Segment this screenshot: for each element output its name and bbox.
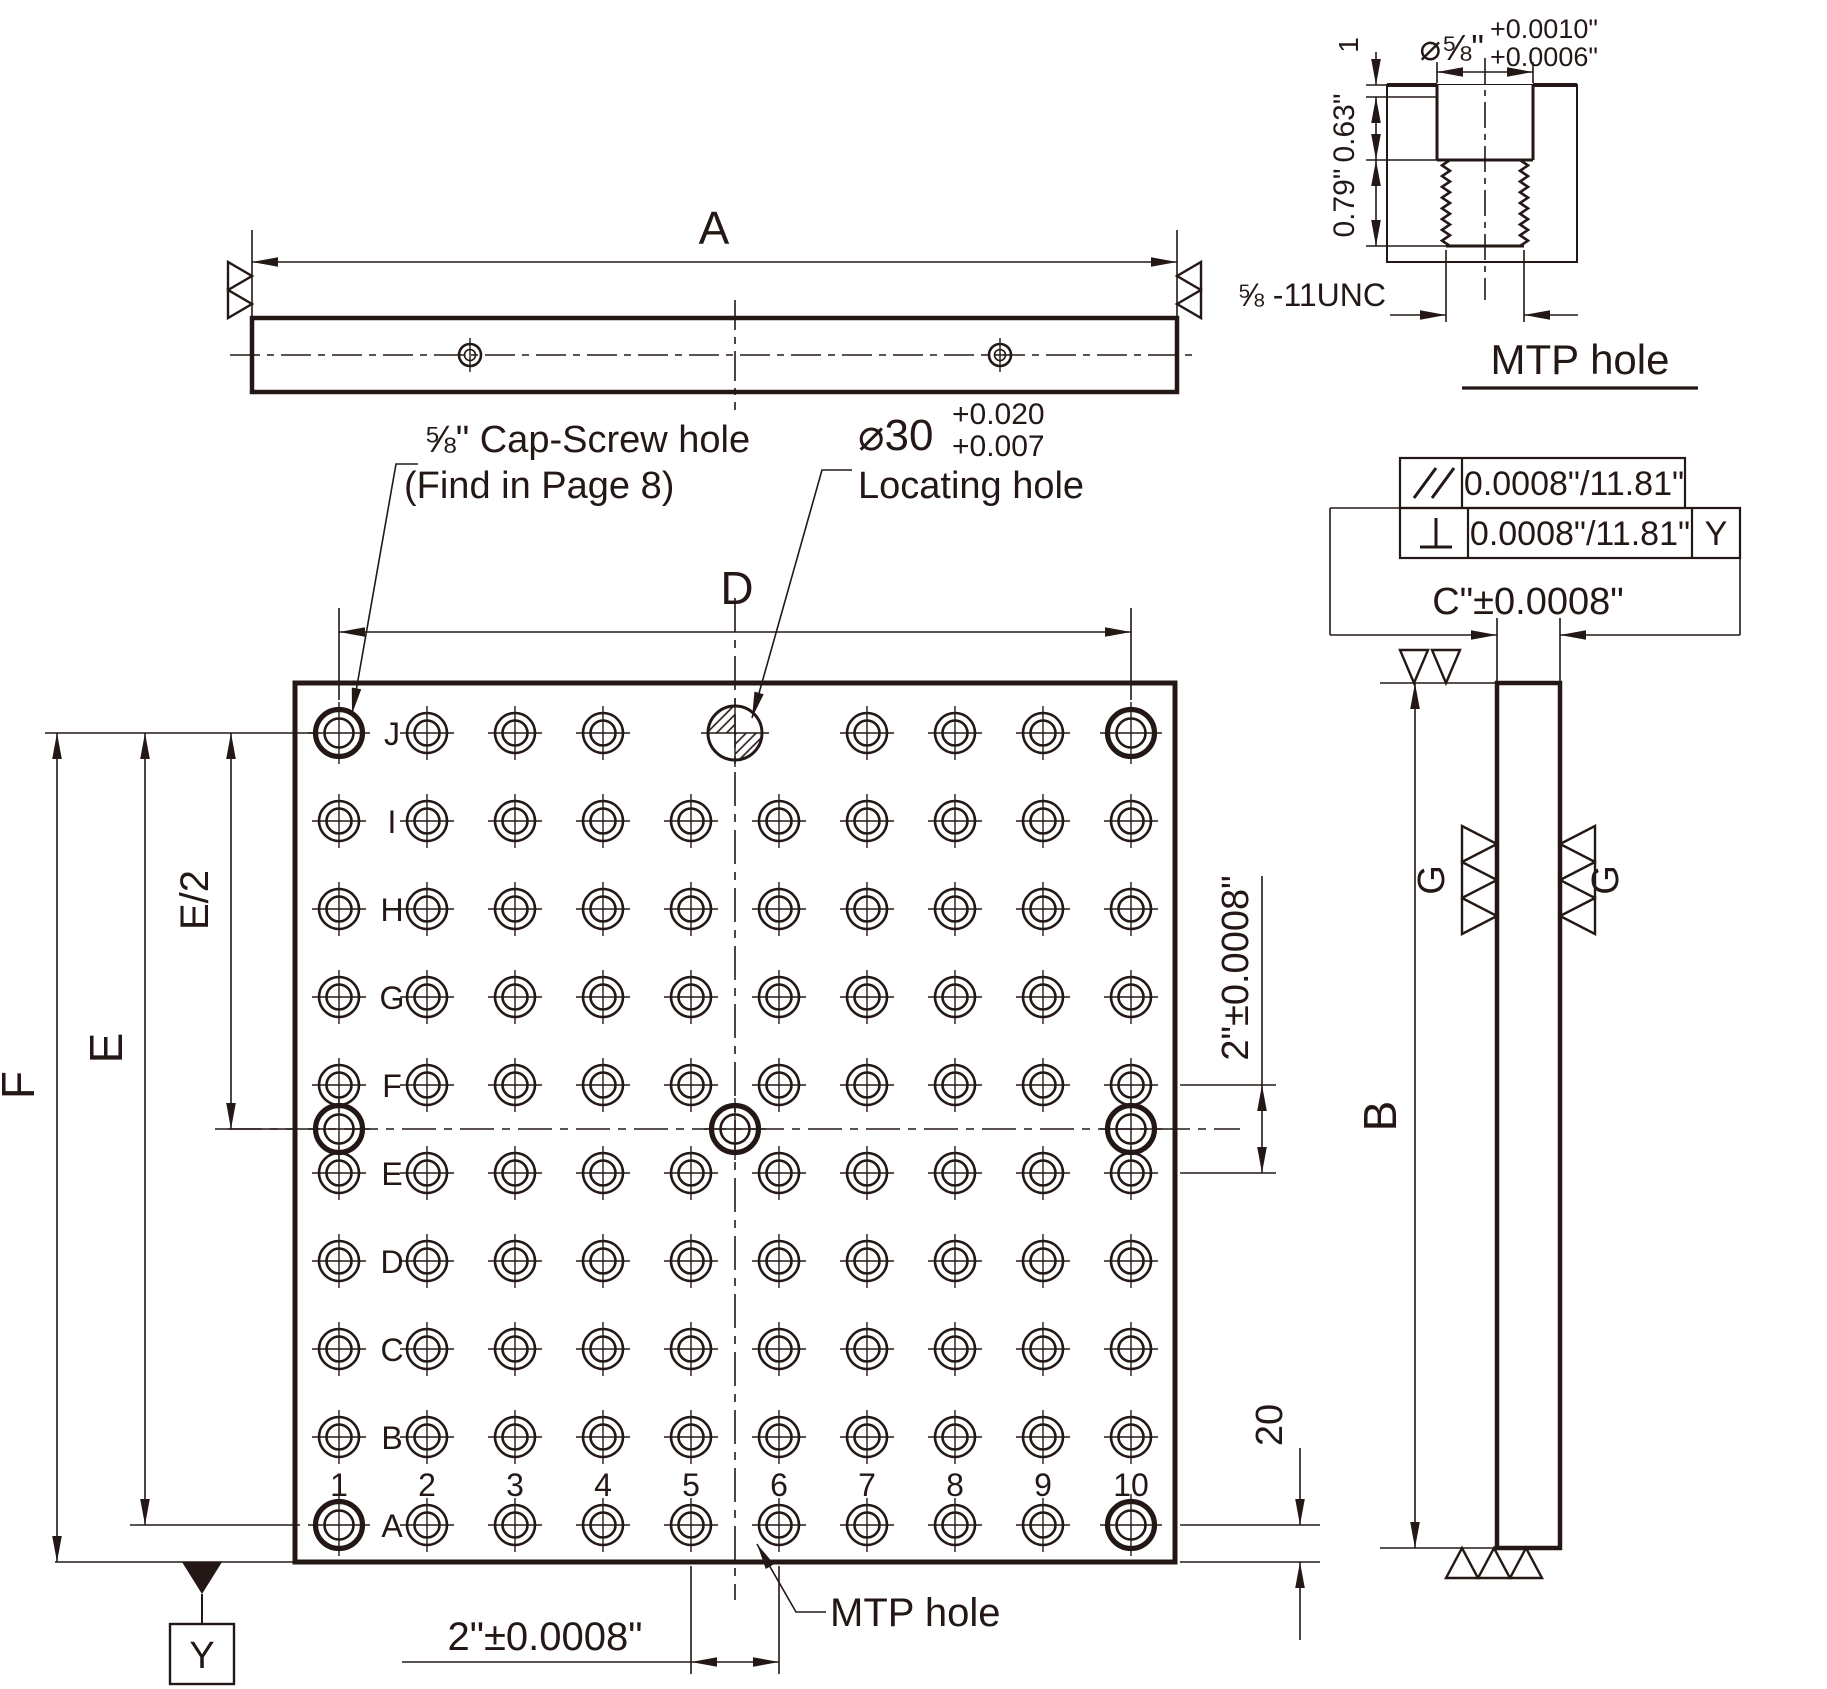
row-label-B: B bbox=[381, 1420, 402, 1456]
mtp-hole bbox=[664, 794, 718, 848]
mtp-hole bbox=[1016, 1498, 1070, 1552]
mtp-hole bbox=[488, 1146, 542, 1200]
surface-finish-marks-side-bottom bbox=[1446, 1548, 1542, 1578]
mtp-hole bbox=[840, 1058, 894, 1112]
detail-dia-label: ⌀⅝" bbox=[1420, 27, 1484, 68]
mtp-hole bbox=[664, 1234, 718, 1288]
mtp-hole bbox=[1104, 1322, 1158, 1376]
mtp-hole bbox=[488, 882, 542, 936]
cap-screw-callout-line2: (Find in Page 8) bbox=[404, 465, 674, 507]
mtp-hole bbox=[1016, 1410, 1070, 1464]
frame-datum-ref: Y bbox=[1705, 515, 1728, 553]
parallelism-value: 0.0008"/11.81" bbox=[1464, 465, 1684, 503]
mtp-hole bbox=[840, 1146, 894, 1200]
surface-finish-marks-side-top bbox=[1400, 650, 1460, 683]
mtp-hole bbox=[664, 1058, 718, 1112]
col-label-6: 6 bbox=[770, 1467, 788, 1503]
mtp-hole bbox=[488, 1498, 542, 1552]
row-label-F: F bbox=[382, 1068, 402, 1104]
mtp-hole bbox=[752, 1498, 806, 1552]
mtp-hole bbox=[1104, 1234, 1158, 1288]
mtp-hole bbox=[312, 970, 366, 1024]
row-label-D: D bbox=[380, 1244, 403, 1280]
mtp-hole bbox=[400, 1058, 454, 1112]
mtp-hole bbox=[928, 1498, 982, 1552]
mtp-hole bbox=[488, 1322, 542, 1376]
dim-label-2in-vertical: 2"±0.0008" bbox=[1215, 875, 1257, 1060]
cap-screw-hole bbox=[1100, 1494, 1162, 1556]
dim-label-D: D bbox=[720, 562, 753, 614]
mtp-hole bbox=[752, 1410, 806, 1464]
detail-thread-label: ⅝ -11UNC bbox=[1237, 277, 1386, 313]
mtp-hole bbox=[488, 1058, 542, 1112]
detail-dim-079: 0.79" bbox=[1328, 168, 1361, 237]
surface-label-G-left: G bbox=[1411, 865, 1453, 895]
surface-finish-marks-G bbox=[1462, 826, 1595, 934]
mtp-hole bbox=[752, 1058, 806, 1112]
mtp-hole bbox=[576, 882, 630, 936]
mtp-hole bbox=[664, 970, 718, 1024]
mtp-hole bbox=[400, 1410, 454, 1464]
mtp-hole bbox=[1104, 882, 1158, 936]
mtp-hole bbox=[928, 1146, 982, 1200]
locating-dia-label: ⌀30 bbox=[858, 411, 933, 460]
mtp-hole bbox=[928, 1322, 982, 1376]
mtp-hole bbox=[664, 1410, 718, 1464]
mtp-hole bbox=[752, 1322, 806, 1376]
mtp-hole bbox=[664, 1498, 718, 1552]
mtp-hole bbox=[840, 706, 894, 760]
mtp-hole bbox=[1016, 1058, 1070, 1112]
col-label-8: 8 bbox=[946, 1467, 964, 1503]
side-thickness-view: C"±0.0008" B G G bbox=[1330, 581, 1740, 1578]
mtp-hole bbox=[752, 1234, 806, 1288]
dim-label-2in-horizontal: 2"±0.0008" bbox=[448, 1615, 643, 1659]
detail-title: MTP hole bbox=[1491, 336, 1670, 383]
mtp-hole bbox=[312, 1410, 366, 1464]
mtp-hole bbox=[400, 970, 454, 1024]
col-label-3: 3 bbox=[506, 1467, 524, 1503]
mtp-hole bbox=[840, 1234, 894, 1288]
parallelism-icon bbox=[1414, 468, 1436, 498]
cap-screw-hole bbox=[1100, 702, 1162, 764]
datum-triangle bbox=[182, 1562, 222, 1594]
dim-label-20: 20 bbox=[1249, 1404, 1291, 1446]
mtp-hole bbox=[840, 1322, 894, 1376]
mtp-hole bbox=[928, 794, 982, 848]
dim-label-C: C"±0.0008" bbox=[1432, 581, 1624, 623]
mtp-hole bbox=[400, 706, 454, 760]
row-label-A: A bbox=[381, 1508, 403, 1544]
col-label-2: 2 bbox=[418, 1467, 436, 1503]
mtp-hole bbox=[1104, 794, 1158, 848]
mtp-hole bbox=[1016, 882, 1070, 936]
locating-name-label: Locating hole bbox=[858, 465, 1084, 507]
mtp-hole-detail-view: ⌀⅝" +0.0010" +0.0006" 1 0.63" 0.79" ⅝ -1… bbox=[1237, 14, 1698, 388]
col-label-5: 5 bbox=[682, 1467, 700, 1503]
mtp-hole bbox=[488, 970, 542, 1024]
mtp-hole bbox=[488, 1410, 542, 1464]
row-label-G: G bbox=[380, 980, 405, 1016]
mtp-hole bbox=[840, 1498, 894, 1552]
mtp-hole bbox=[400, 882, 454, 936]
locating-tol-lower: +0.007 bbox=[952, 430, 1045, 463]
mtp-hole bbox=[400, 1498, 454, 1552]
mtp-hole bbox=[840, 882, 894, 936]
mtp-hole bbox=[752, 1146, 806, 1200]
mtp-hole bbox=[928, 706, 982, 760]
side-view-plate-body bbox=[1497, 683, 1560, 1548]
dim-label-B: B bbox=[1354, 1101, 1406, 1132]
mtp-hole bbox=[1016, 1322, 1070, 1376]
row-label-C: C bbox=[380, 1332, 403, 1368]
mtp-hole bbox=[1104, 970, 1158, 1024]
col-label-1: 1 bbox=[330, 1467, 348, 1503]
row-label-I: I bbox=[388, 804, 397, 840]
col-label-4: 4 bbox=[594, 1467, 612, 1503]
mtp-hole bbox=[576, 1058, 630, 1112]
perpendicularity-value: 0.0008"/11.81" bbox=[1470, 515, 1690, 553]
mtp-hole bbox=[576, 1322, 630, 1376]
surface-finish-marks-top-view bbox=[228, 262, 1201, 318]
mtp-hole bbox=[1016, 706, 1070, 760]
mtp-hole bbox=[488, 706, 542, 760]
cap-screw-hole bbox=[308, 1494, 370, 1556]
mtp-hole bbox=[576, 1498, 630, 1552]
mtp-hole bbox=[312, 794, 366, 848]
mtp-hole bbox=[400, 1234, 454, 1288]
mtp-hole bbox=[1104, 1410, 1158, 1464]
detail-dim-1: 1 bbox=[1333, 37, 1364, 53]
mtp-hole-leader bbox=[757, 1544, 826, 1612]
mtp-hole bbox=[312, 1234, 366, 1288]
mtp-hole bbox=[928, 1410, 982, 1464]
mtp-hole bbox=[928, 1234, 982, 1288]
row-label-J: J bbox=[384, 716, 400, 752]
mtp-hole bbox=[576, 706, 630, 760]
mtp-hole bbox=[312, 882, 366, 936]
main-plan-view: JIHGFEDCBA12345678910 D F E E/2 2"±0.000… bbox=[0, 398, 1320, 1684]
mtp-hole bbox=[576, 1234, 630, 1288]
detail-dim-063: 0.63" bbox=[1328, 93, 1361, 162]
mtp-hole bbox=[576, 794, 630, 848]
mtp-hole bbox=[312, 1322, 366, 1376]
dim-label-F: F bbox=[0, 1071, 44, 1099]
mtp-hole bbox=[928, 1058, 982, 1112]
mtp-hole bbox=[400, 794, 454, 848]
mtp-hole bbox=[1016, 1146, 1070, 1200]
col-label-10: 10 bbox=[1113, 1467, 1149, 1503]
engineering-drawing-mtp-plate: A ⌀⅝" +0.0010" +0.0006" bbox=[0, 0, 1827, 1689]
mtp-hole bbox=[576, 1146, 630, 1200]
cap-screw-callout-line1: ⅝" Cap-Screw hole bbox=[424, 419, 750, 461]
mtp-hole bbox=[928, 882, 982, 936]
mtp-hole-plan-label: MTP hole bbox=[830, 1591, 1000, 1635]
mtp-hole bbox=[400, 1146, 454, 1200]
mtp-hole bbox=[1016, 970, 1070, 1024]
col-label-9: 9 bbox=[1034, 1467, 1052, 1503]
cap-screw-hole bbox=[308, 702, 370, 764]
detail-dia-tol-upper: +0.0010" bbox=[1490, 14, 1598, 44]
mtp-hole bbox=[400, 1322, 454, 1376]
mtp-hole bbox=[840, 794, 894, 848]
datum-label-Y: Y bbox=[189, 1635, 214, 1677]
mtp-hole bbox=[576, 1410, 630, 1464]
mtp-hole bbox=[840, 1410, 894, 1464]
row-label-H: H bbox=[380, 892, 403, 928]
mtp-hole bbox=[664, 1322, 718, 1376]
cap-screw-hole bbox=[1100, 1098, 1162, 1160]
row-label-E: E bbox=[381, 1156, 402, 1192]
dim-label-E2: E/2 bbox=[173, 870, 217, 930]
grid-labels: JIHGFEDCBA12345678910 bbox=[330, 716, 1149, 1544]
mtp-hole bbox=[664, 882, 718, 936]
locating-tol-upper: +0.020 bbox=[952, 398, 1045, 431]
mtp-hole bbox=[752, 882, 806, 936]
mtp-hole bbox=[840, 970, 894, 1024]
mtp-hole bbox=[576, 970, 630, 1024]
top-strip-view: A bbox=[228, 202, 1201, 410]
cap-screw-hole bbox=[704, 1098, 766, 1160]
mtp-hole bbox=[1016, 1234, 1070, 1288]
locating-hole bbox=[701, 699, 769, 767]
dim-label-E: E bbox=[80, 1033, 132, 1064]
mtp-hole bbox=[1016, 794, 1070, 848]
mtp-hole bbox=[488, 1234, 542, 1288]
surface-label-G-right: G bbox=[1585, 865, 1627, 895]
dim-label-A: A bbox=[699, 202, 730, 254]
mtp-hole bbox=[488, 794, 542, 848]
col-label-7: 7 bbox=[858, 1467, 876, 1503]
mtp-hole bbox=[928, 970, 982, 1024]
mtp-hole bbox=[664, 1146, 718, 1200]
mtp-hole bbox=[752, 794, 806, 848]
detail-dia-tol-lower: +0.0006" bbox=[1490, 42, 1598, 72]
cap-screw-hole bbox=[308, 1098, 370, 1160]
mtp-hole bbox=[752, 970, 806, 1024]
